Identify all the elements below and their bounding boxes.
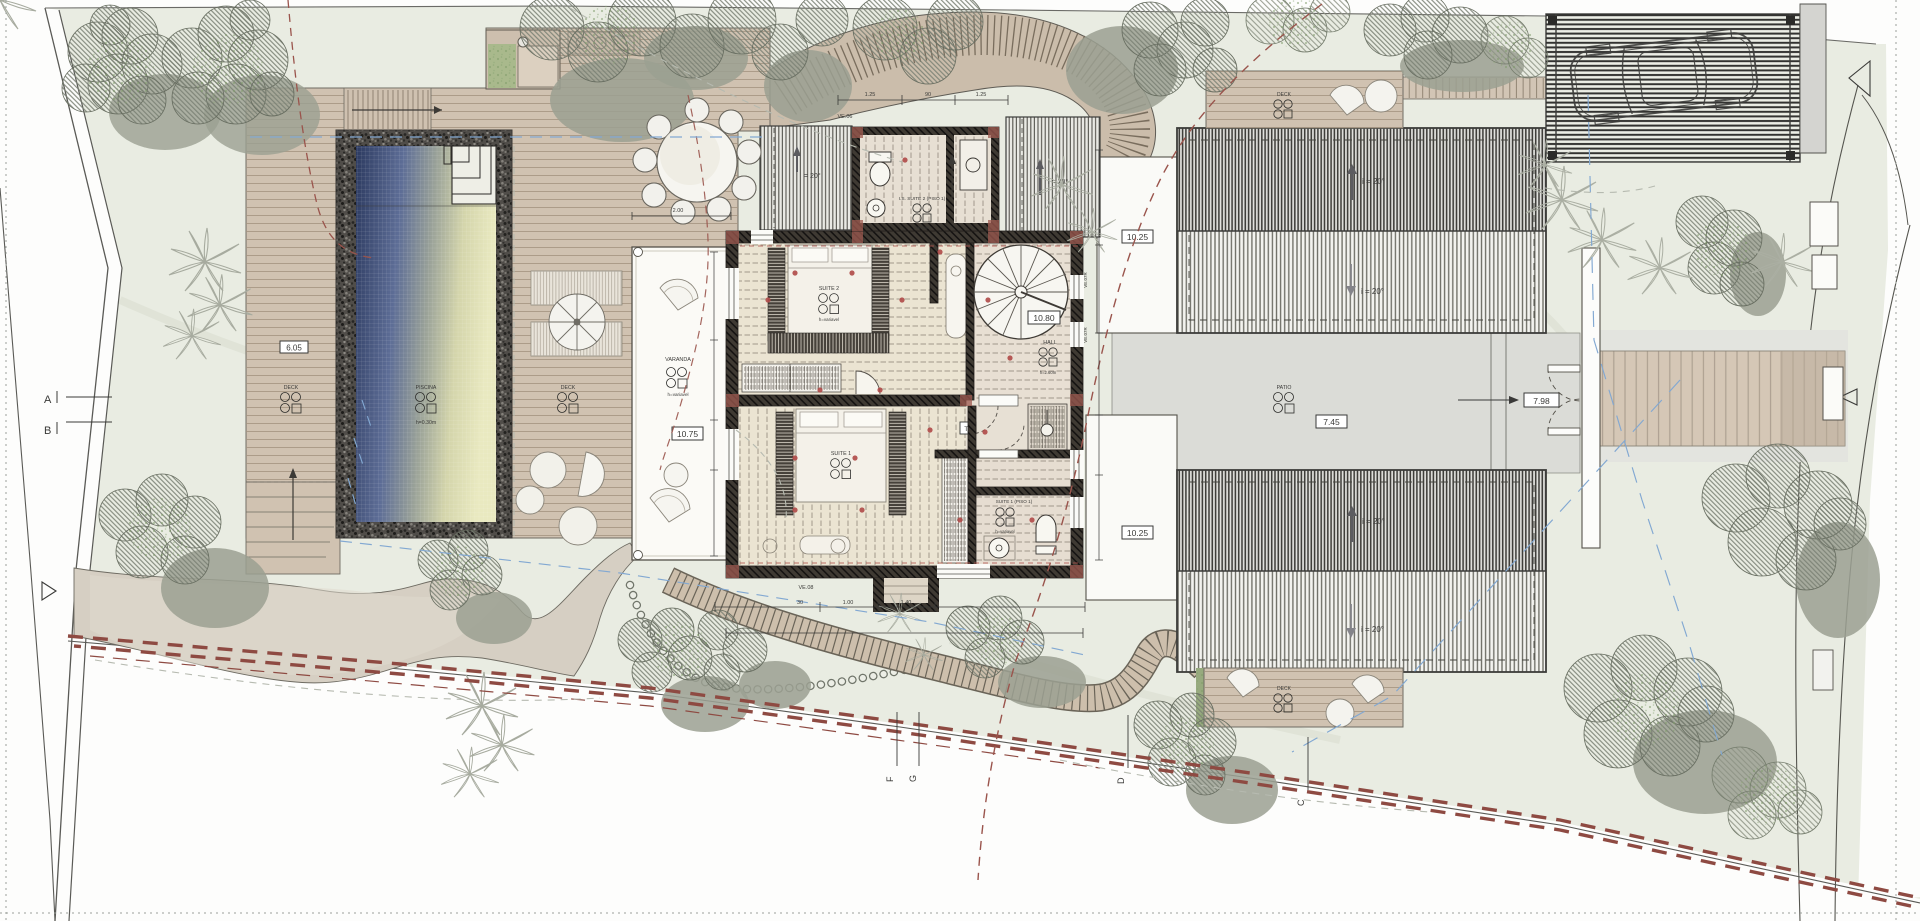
svg-text:A: A (44, 394, 52, 406)
svg-text:10.80: 10.80 (1033, 313, 1055, 323)
svg-text:h=variavel: h=variavel (819, 317, 839, 322)
svg-text:VE.06: VE.06 (838, 114, 853, 120)
svg-text:F: F (885, 776, 895, 782)
svg-text:I.S. SUITE 2 (PISO 1): I.S. SUITE 2 (PISO 1) (899, 196, 946, 202)
svg-text:10.75: 10.75 (677, 429, 699, 439)
svg-text:30: 30 (797, 600, 803, 606)
svg-text:1.25: 1.25 (976, 92, 987, 98)
svg-text:D: D (1116, 777, 1126, 784)
svg-text:= 20°: = 20° (804, 172, 821, 180)
svg-text:VE.07R: VE.07R (1083, 271, 1088, 287)
svg-text:10.25: 10.25 (1127, 232, 1149, 242)
svg-text:SUITE 2: SUITE 2 (819, 286, 839, 292)
svg-text:PATIO: PATIO (1277, 385, 1292, 391)
svg-text:B: B (44, 425, 51, 437)
svg-text:i = 20°: i = 20° (1361, 287, 1384, 296)
svg-text:7.45: 7.45 (1323, 417, 1340, 427)
svg-text:VE.07R: VE.07R (1083, 326, 1088, 342)
svg-text:2.00: 2.00 (673, 208, 684, 214)
svg-text:C: C (1296, 799, 1306, 806)
svg-text:DECK: DECK (1277, 92, 1292, 98)
svg-text:90: 90 (925, 92, 931, 98)
svg-text:i = 20°: i = 20° (1361, 625, 1384, 634)
svg-text:10.25: 10.25 (1127, 528, 1149, 538)
svg-text:DECK: DECK (1277, 686, 1292, 692)
svg-text:6.05: 6.05 (286, 344, 302, 353)
svg-text:1.00: 1.00 (843, 600, 854, 606)
svg-text:1.40: 1.40 (901, 600, 912, 606)
svg-text:HALL: HALL (1043, 340, 1057, 346)
svg-text:7.98: 7.98 (1533, 396, 1550, 406)
svg-text:h=0.30m: h=0.30m (416, 420, 436, 426)
svg-text:PISCINA: PISCINA (416, 385, 437, 391)
svg-text:(variavel): (variavel) (913, 225, 931, 230)
svg-text:h=variavel: h=variavel (667, 392, 688, 397)
svg-text:i = 20°: i = 20° (1362, 177, 1385, 186)
svg-text:DECK: DECK (284, 385, 299, 391)
svg-text:i = 20°: i = 20° (1362, 517, 1385, 526)
svg-text:DECK: DECK (561, 385, 576, 391)
svg-text:SUITE 1: SUITE 1 (831, 451, 851, 457)
svg-text:VE.08: VE.08 (799, 585, 814, 591)
svg-text:1.25: 1.25 (865, 92, 876, 98)
svg-text:G: G (908, 775, 918, 782)
svg-text:SUITE 1 (PISO 1): SUITE 1 (PISO 1) (996, 499, 1033, 504)
svg-text:h=2.60m: h=2.60m (1040, 370, 1057, 375)
svg-text:h=variavel: h=variavel (995, 529, 1014, 534)
svg-text:VARANDA: VARANDA (665, 357, 691, 363)
